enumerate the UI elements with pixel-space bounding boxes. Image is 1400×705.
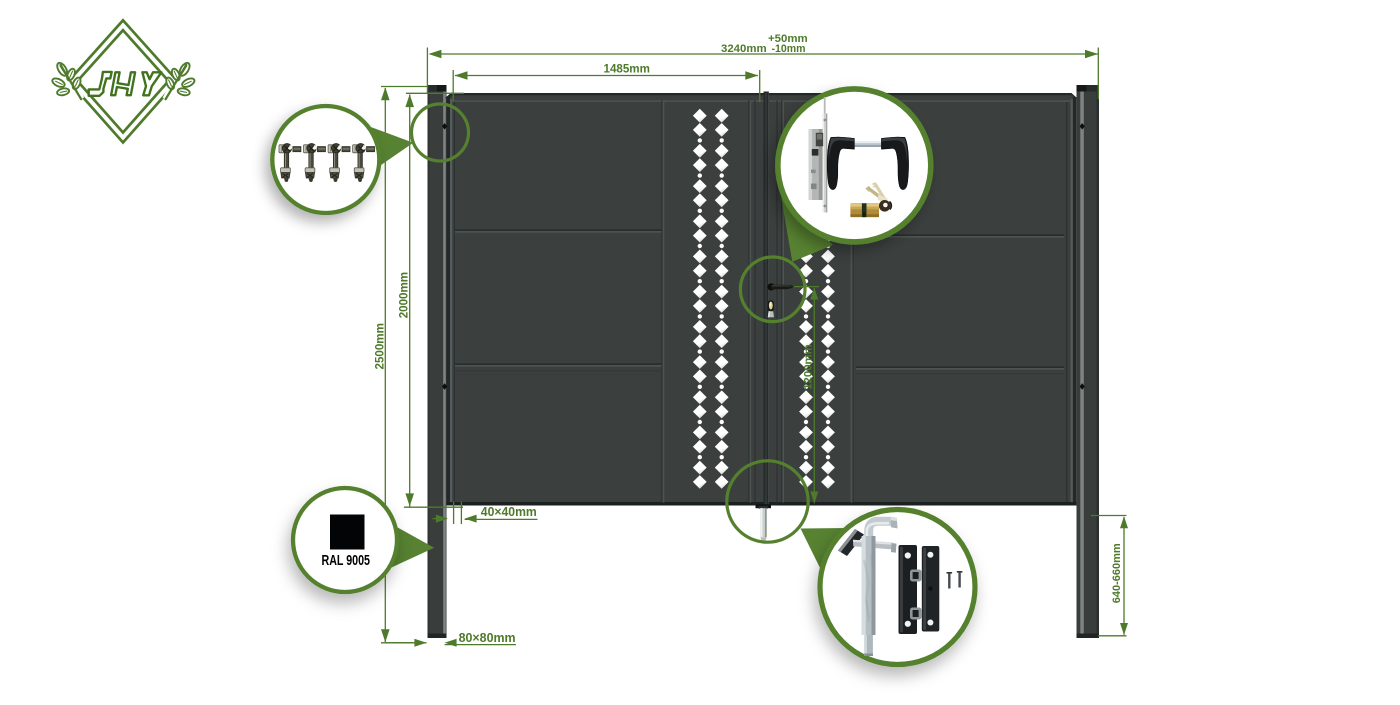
svg-text:40×40mm: 40×40mm: [481, 504, 537, 519]
svg-text:1485mm: 1485mm: [604, 63, 650, 76]
svg-text:RAL 9005: RAL 9005: [322, 553, 371, 569]
svg-text:640-660mm: 640-660mm: [1111, 543, 1123, 603]
svg-text:1200mm: 1200mm: [803, 344, 815, 390]
svg-text:3240mm: 3240mm: [721, 43, 767, 55]
svg-text:-10mm: -10mm: [772, 43, 806, 55]
svg-text:80×80mm: 80×80mm: [459, 630, 516, 645]
svg-text:2500mm: 2500mm: [373, 323, 386, 369]
svg-text:2000mm: 2000mm: [398, 272, 411, 318]
